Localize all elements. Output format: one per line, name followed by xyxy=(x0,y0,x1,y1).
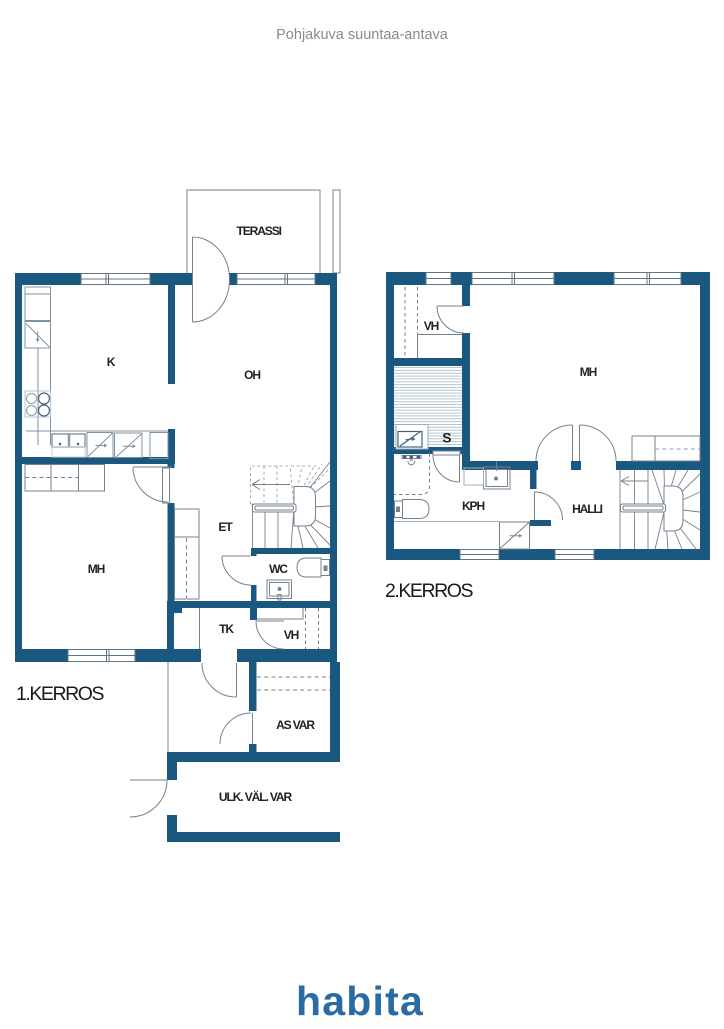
svg-text:VH: VH xyxy=(284,628,299,642)
svg-text:OH: OH xyxy=(244,368,260,382)
svg-text:KPH: KPH xyxy=(462,499,484,513)
svg-text:ULK. VÄL. VAR: ULK. VÄL. VAR xyxy=(219,789,293,804)
svg-text:S: S xyxy=(442,430,451,446)
svg-text:MH: MH xyxy=(580,365,597,379)
svg-text:HALLI: HALLI xyxy=(572,502,603,516)
svg-text:MH: MH xyxy=(88,562,105,576)
svg-text:AS VAR: AS VAR xyxy=(276,718,315,732)
svg-text:2.KERROS: 2.KERROS xyxy=(385,580,473,602)
svg-text:Pohjakuva suuntaa-antava: Pohjakuva suuntaa-antava xyxy=(276,27,449,43)
svg-text:TK: TK xyxy=(219,622,234,636)
svg-text:ET: ET xyxy=(218,520,233,534)
svg-text:VH: VH xyxy=(424,319,439,333)
svg-text:1.KERROS: 1.KERROS xyxy=(16,683,104,705)
svg-text:TERASSI: TERASSI xyxy=(237,224,282,238)
svg-text:habita: habita xyxy=(296,978,424,1024)
svg-text:WC: WC xyxy=(269,562,288,576)
